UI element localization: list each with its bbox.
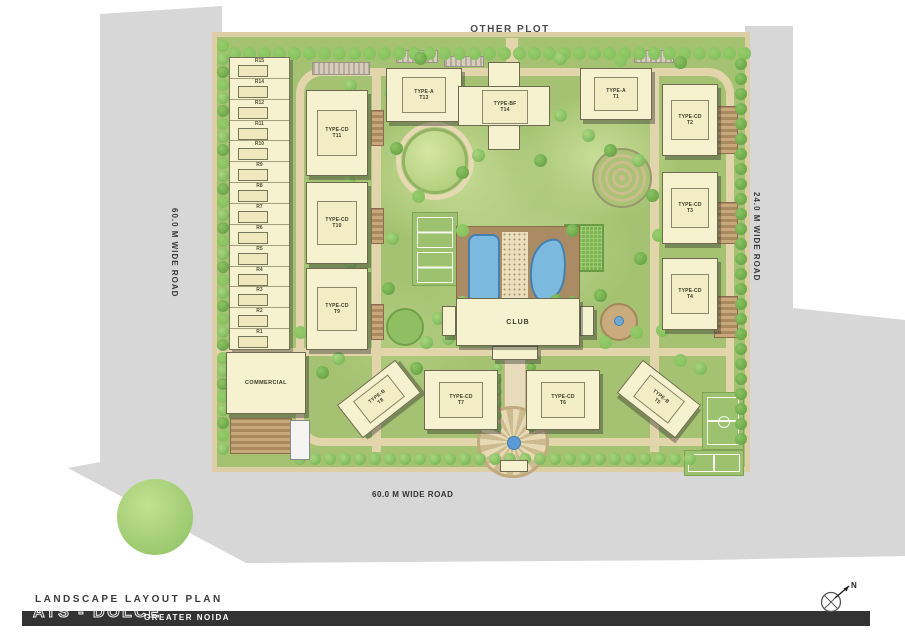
tree-icon — [217, 144, 229, 156]
tower-t13: TYPE-A T13 — [386, 68, 462, 122]
tree-icon — [217, 92, 229, 104]
tree-icon — [217, 209, 229, 221]
tree-icon — [414, 453, 426, 465]
pool-deck-paving — [502, 232, 528, 308]
tree-icon — [708, 47, 721, 60]
tree-icon — [588, 47, 601, 60]
tree-icon — [390, 142, 403, 155]
row-house-label: R8 — [256, 184, 262, 189]
tree-icon — [528, 47, 541, 60]
tree-icon — [549, 453, 561, 465]
tree-icon — [414, 52, 427, 65]
tree-icon — [735, 403, 747, 415]
commercial-building: COMMERCIAL — [226, 352, 306, 414]
tree-icon — [634, 252, 647, 265]
row-house-label: R2 — [256, 309, 262, 314]
tree-icon — [498, 47, 511, 60]
tree-icon — [735, 178, 747, 190]
tree-icon — [594, 289, 607, 302]
parking-strip — [371, 110, 384, 146]
tree-icon — [324, 453, 336, 465]
tree-icon — [348, 47, 361, 60]
tree-icon — [564, 453, 576, 465]
tree-icon — [303, 47, 316, 60]
row-house-label: R11 — [255, 122, 264, 127]
row-house-unit: R6 — [230, 225, 289, 246]
tree-icon — [217, 66, 229, 78]
tree-icon — [614, 54, 627, 67]
tower-t1: TYPE-A T1 — [580, 68, 652, 120]
row-house-label: R14 — [255, 80, 264, 85]
tree-icon — [674, 56, 687, 69]
tree-icon — [217, 339, 229, 351]
tree-icon — [566, 224, 579, 237]
commercial-label: COMMERCIAL — [245, 380, 287, 386]
tree-icon — [217, 287, 229, 299]
tree-icon — [412, 190, 425, 203]
tree-icon — [393, 47, 406, 60]
tree-icon — [332, 352, 345, 365]
tree-icon — [318, 47, 331, 60]
tower-t3: TYPE-CD T3 — [662, 172, 718, 244]
tree-icon — [294, 326, 307, 339]
tree-icon — [217, 170, 229, 182]
tree-icon — [438, 47, 451, 60]
tree-icon — [217, 300, 229, 312]
tree-icon — [609, 453, 621, 465]
row-house-unit: R2 — [230, 308, 289, 329]
club-building: CLUB — [456, 298, 580, 346]
north-compass-icon: N — [815, 578, 861, 618]
tree-icon — [654, 453, 666, 465]
tree-icon — [735, 88, 747, 100]
row-house-unit: R12 — [230, 100, 289, 121]
tower-t9: TYPE-CD T9 — [306, 268, 368, 350]
compass-n-label: N — [851, 581, 857, 590]
parking-strip — [371, 208, 384, 244]
tower-t2: TYPE-CD T2 — [662, 84, 718, 156]
row-house-footprint — [238, 86, 268, 98]
fountain-icon — [614, 316, 624, 326]
tree-icon — [217, 430, 229, 442]
tree-icon — [639, 453, 651, 465]
project-location: GREATER NOIDA — [144, 613, 230, 622]
row-house-footprint — [238, 148, 268, 160]
other-plot-label: OTHER PLOT — [430, 24, 590, 35]
row-house-unit: R9 — [230, 162, 289, 183]
tree-icon — [316, 366, 329, 379]
tree-icon — [384, 453, 396, 465]
tree-icon — [217, 79, 229, 91]
tree-icon — [399, 453, 411, 465]
tree-icon — [735, 418, 747, 430]
tower-t7: TYPE-CD T7 — [424, 370, 498, 430]
tree-icon — [217, 118, 229, 130]
parking-strip — [371, 304, 384, 340]
row-house-unit: R14 — [230, 79, 289, 100]
tree-icon — [217, 248, 229, 260]
tree-icon — [694, 362, 707, 375]
tree-icon — [735, 238, 747, 250]
club-entry-steps — [492, 346, 538, 360]
tree-icon — [735, 103, 747, 115]
tree-icon — [735, 133, 747, 145]
tree-icon — [534, 154, 547, 167]
tree-icon — [735, 433, 747, 445]
green-mound-outside — [117, 479, 193, 555]
row-house-unit: R11 — [230, 121, 289, 142]
tree-icon — [420, 336, 433, 349]
tree-icon — [474, 453, 486, 465]
row-house-footprint — [238, 232, 268, 244]
tree-icon — [735, 163, 747, 175]
tree-icon — [217, 417, 229, 429]
tree-icon — [369, 453, 381, 465]
tree-icon — [217, 222, 229, 234]
tree-icon — [735, 253, 747, 265]
tree-icon — [444, 453, 456, 465]
row-house-unit: R10 — [230, 141, 289, 162]
tree-icon — [633, 47, 646, 60]
row-houses: R15R14R12R11R10R9R8R7R6R5R4R3R2R1 — [229, 57, 290, 350]
tree-icon — [735, 343, 747, 355]
tree-icon — [579, 453, 591, 465]
tree-icon — [735, 223, 747, 235]
row-house-footprint — [238, 190, 268, 202]
road-label-south: 60.0 M WIDE ROAD — [372, 490, 453, 499]
tree-icon — [684, 453, 696, 465]
tree-icon — [648, 47, 661, 60]
row-house-unit: R3 — [230, 287, 289, 308]
tree-icon — [632, 154, 645, 167]
tree-icon — [735, 313, 747, 325]
tree-icon — [217, 157, 229, 169]
row-house-footprint — [238, 336, 268, 348]
tennis-court-lines — [417, 252, 453, 283]
tree-icon — [723, 47, 736, 60]
tree-icon — [735, 148, 747, 160]
tree-icon — [217, 105, 229, 117]
tree-icon — [217, 261, 229, 273]
tree-icon — [456, 224, 469, 237]
tower-t4: TYPE-CD T4 — [662, 258, 718, 330]
row-house-label: R10 — [255, 142, 264, 147]
club-label: CLUB — [506, 319, 529, 326]
tree-icon — [363, 47, 376, 60]
row-house-footprint — [238, 128, 268, 140]
row-house-footprint — [238, 274, 268, 286]
tree-icon — [599, 336, 612, 349]
row-house-label: R4 — [256, 268, 262, 273]
tree-icon — [459, 453, 471, 465]
row-house-label: R15 — [255, 59, 264, 64]
tree-icon — [354, 453, 366, 465]
tree-icon — [674, 354, 687, 367]
tree-icon — [382, 282, 395, 295]
tree-icon — [217, 326, 229, 338]
tree-icon — [468, 47, 481, 60]
tree-icon — [410, 362, 423, 375]
main-gate — [500, 460, 528, 472]
tree-icon — [513, 47, 526, 60]
tree-icon — [630, 326, 643, 339]
row-house-unit: R8 — [230, 183, 289, 204]
tower-t6: TYPE-CD T6 — [526, 370, 600, 430]
tree-icon — [735, 358, 747, 370]
tree-icon — [217, 183, 229, 195]
tree-icon — [735, 118, 747, 130]
tower-t11: TYPE-CD T11 — [306, 90, 368, 176]
row-house-label: R9 — [256, 163, 262, 168]
tree-icon — [554, 109, 567, 122]
row-house-footprint — [238, 211, 268, 223]
tree-icon — [582, 129, 595, 142]
tree-icon — [735, 58, 747, 70]
tree-icon — [217, 443, 229, 455]
parking-strip — [312, 62, 370, 75]
tree-icon — [735, 208, 747, 220]
tree-icon — [217, 196, 229, 208]
road-label-west: 60.0 M WIDE ROAD — [170, 208, 179, 297]
tree-icon — [735, 193, 747, 205]
club-wing-west — [442, 306, 456, 336]
tree-icon — [646, 189, 659, 202]
tree-icon — [534, 453, 546, 465]
row-house-unit: R4 — [230, 267, 289, 288]
tree-icon — [386, 232, 399, 245]
tree-icon — [735, 268, 747, 280]
substation-building — [290, 420, 310, 460]
tree-icon — [735, 328, 747, 340]
tree-icon — [333, 47, 346, 60]
tree-icon — [735, 298, 747, 310]
tree-icon — [309, 453, 321, 465]
tree-icon — [604, 144, 617, 157]
tree-icon — [735, 283, 747, 295]
row-house-label: R3 — [256, 288, 262, 293]
club-wing-east — [580, 306, 594, 336]
tree-icon — [217, 274, 229, 286]
road-label-east: 24.0 M WIDE ROAD — [752, 192, 761, 281]
row-house-footprint — [238, 169, 268, 181]
tree-icon — [573, 47, 586, 60]
tree-icon — [483, 47, 496, 60]
tree-icon — [594, 453, 606, 465]
tree-icon — [456, 166, 469, 179]
tower-t10: TYPE-CD T10 — [306, 182, 368, 264]
project-name: ATS - DOLCE — [33, 604, 162, 622]
row-house-unit: R15 — [230, 58, 289, 79]
tree-icon — [217, 235, 229, 247]
row-house-label: R5 — [256, 247, 262, 252]
commercial-parking — [230, 418, 292, 454]
row-house-label: R6 — [256, 226, 262, 231]
tree-icon — [663, 47, 676, 60]
row-house-label: R7 — [256, 205, 262, 210]
tree-icon — [735, 388, 747, 400]
tree-icon — [735, 373, 747, 385]
tree-icon — [217, 40, 229, 52]
tree-icon — [693, 47, 706, 60]
tennis-court-lines — [417, 217, 453, 248]
row-house-footprint — [238, 107, 268, 119]
row-house-unit: R1 — [230, 329, 289, 349]
landscape-layout-plan: CLUB TYPE-A T13 TYPE-BF T14 TYPE-A T1 TY… — [0, 0, 905, 640]
tree-icon — [669, 453, 681, 465]
tree-icon — [217, 131, 229, 143]
small-lawn-circle — [386, 308, 424, 346]
row-house-footprint — [238, 315, 268, 327]
tree-icon — [339, 453, 351, 465]
tree-icon — [217, 313, 229, 325]
tower-t14: TYPE-BF T14 — [458, 62, 550, 150]
tree-icon — [429, 453, 441, 465]
tree-icon — [453, 47, 466, 60]
row-house-label: R1 — [256, 330, 262, 335]
row-house-unit: R5 — [230, 246, 289, 267]
row-house-footprint — [238, 253, 268, 265]
tree-icon — [378, 47, 391, 60]
row-house-unit: R7 — [230, 204, 289, 225]
swimming-pool-lap — [468, 234, 500, 304]
row-house-label: R12 — [255, 101, 264, 106]
tennis-courts — [412, 212, 458, 286]
tree-icon — [735, 73, 747, 85]
tree-icon — [554, 52, 567, 65]
tree-icon — [472, 149, 485, 162]
row-house-footprint — [238, 65, 268, 77]
row-house-footprint — [238, 294, 268, 306]
tree-icon — [624, 453, 636, 465]
